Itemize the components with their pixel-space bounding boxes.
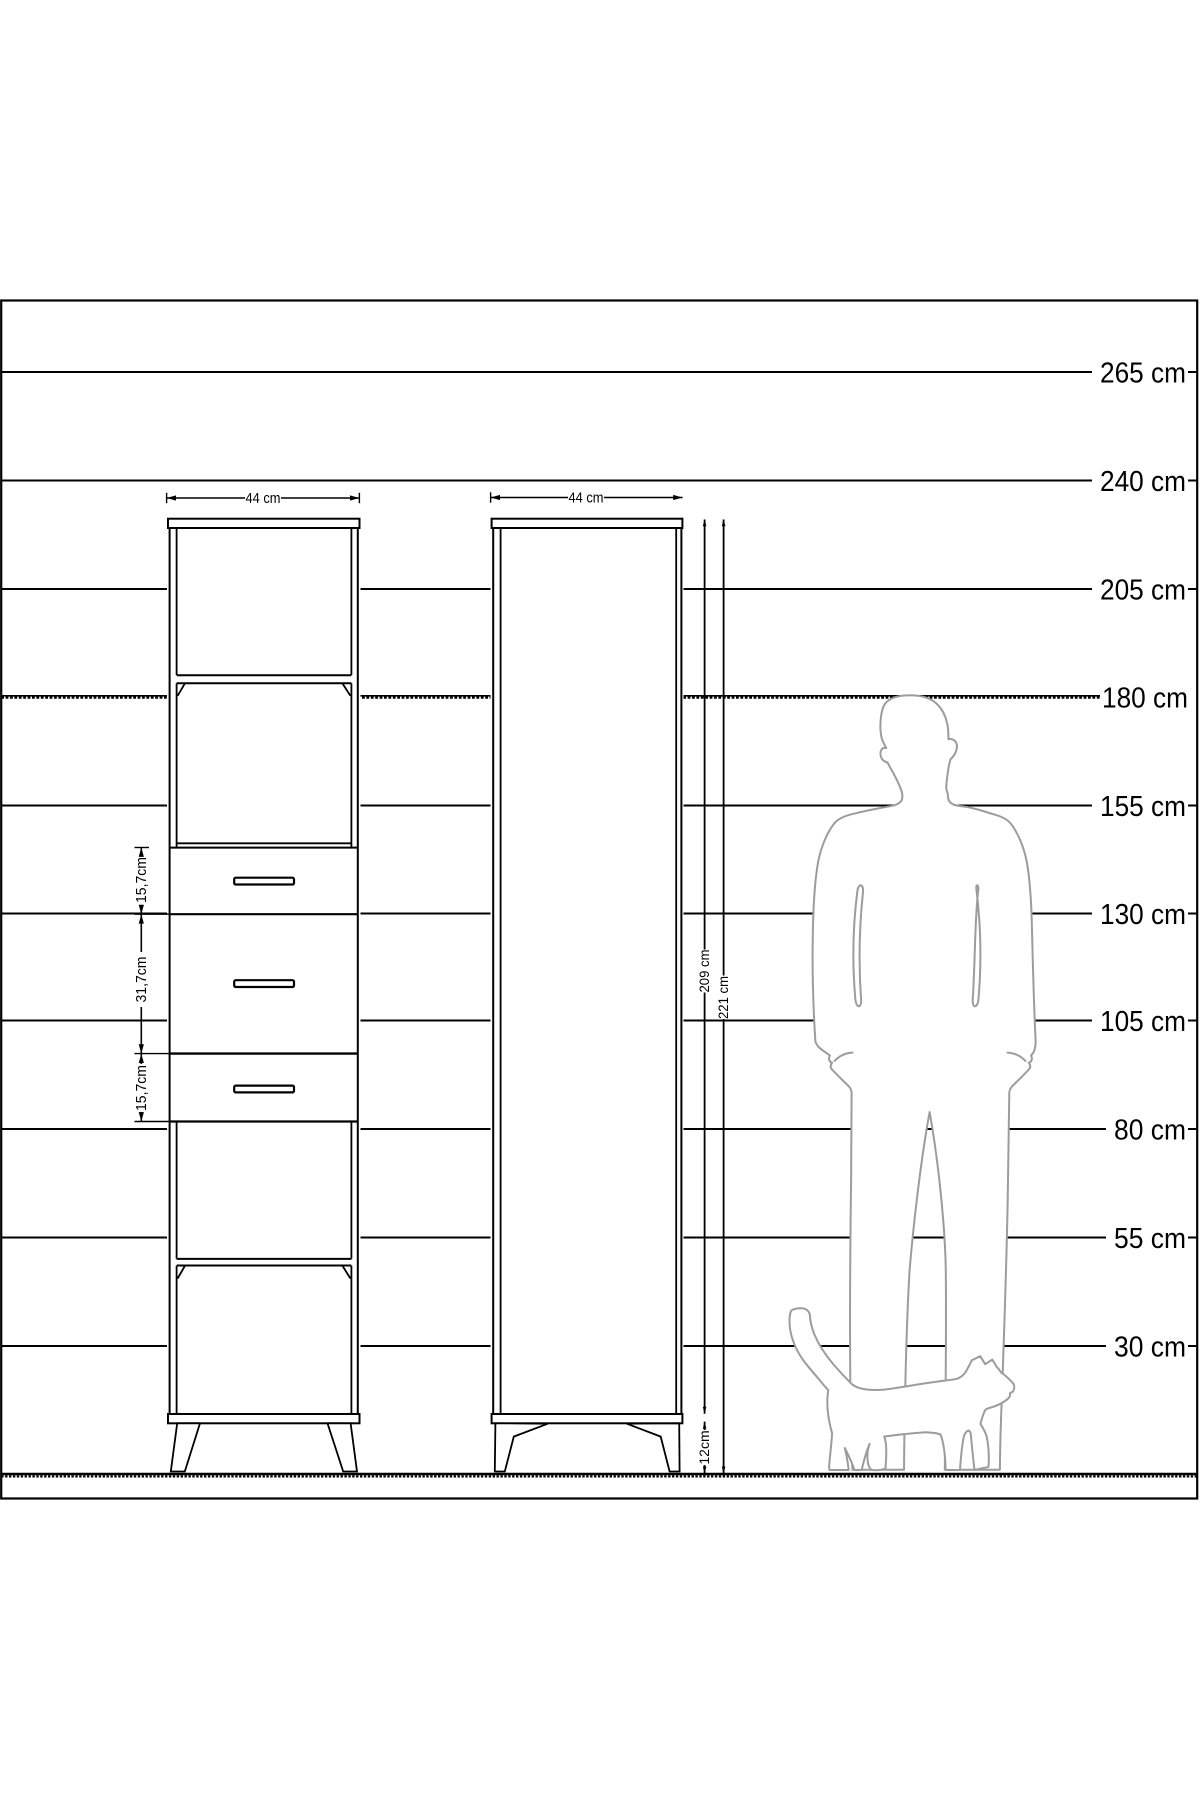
svg-text:105 cm: 105 cm (1100, 1006, 1186, 1038)
svg-text:44 cm: 44 cm (569, 491, 604, 507)
svg-text:240 cm: 240 cm (1100, 466, 1186, 498)
svg-text:130 cm: 130 cm (1100, 899, 1186, 931)
svg-text:55 cm: 55 cm (1114, 1223, 1186, 1255)
svg-text:44 cm: 44 cm (246, 491, 281, 507)
svg-text:12cm: 12cm (696, 1430, 712, 1464)
svg-text:180 cm: 180 cm (1102, 683, 1188, 715)
svg-text:155 cm: 155 cm (1100, 791, 1186, 823)
svg-text:30 cm: 30 cm (1114, 1332, 1186, 1364)
svg-text:80 cm: 80 cm (1114, 1115, 1186, 1147)
svg-text:205 cm: 205 cm (1100, 575, 1186, 607)
svg-text:221 cm: 221 cm (715, 976, 731, 1019)
svg-text:15,7cm: 15,7cm (133, 857, 150, 903)
svg-text:15,7cm: 15,7cm (133, 1065, 150, 1111)
svg-text:209 cm: 209 cm (696, 950, 712, 993)
svg-text:265 cm: 265 cm (1100, 358, 1186, 390)
svg-text:31,7cm: 31,7cm (133, 957, 150, 1003)
